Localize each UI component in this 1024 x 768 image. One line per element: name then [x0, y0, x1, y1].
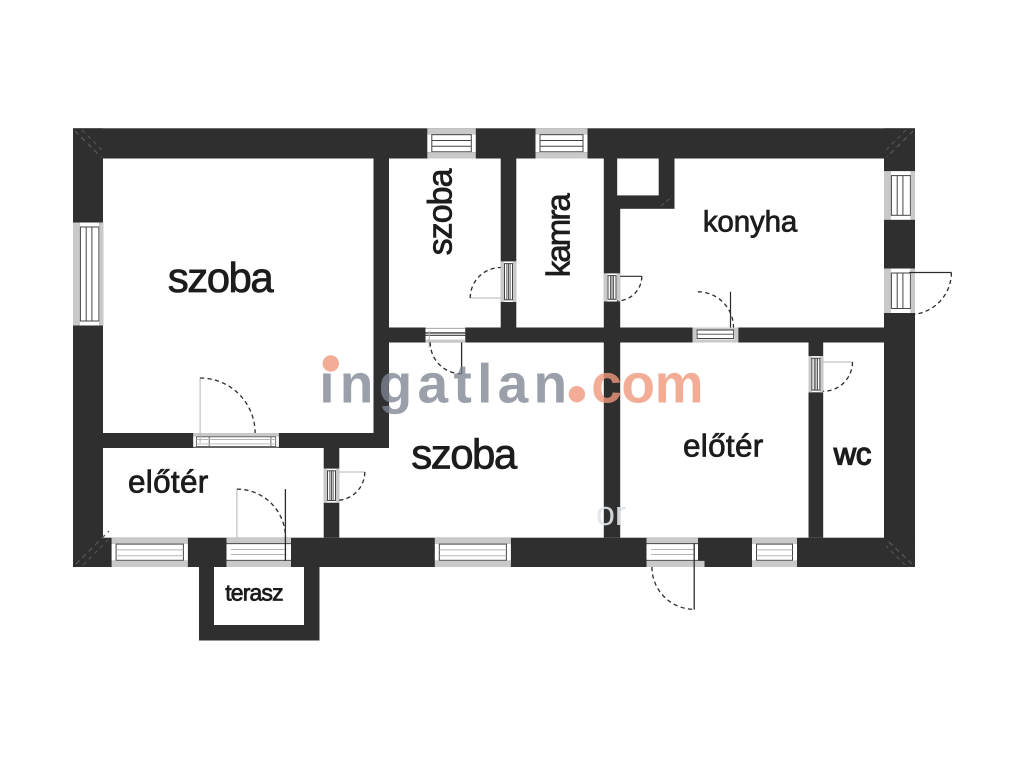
- svg-text:előtér: előtér: [683, 427, 764, 463]
- svg-text:ıngatlan: ıngatlan: [319, 352, 572, 414]
- svg-text:szoba: szoba: [422, 168, 460, 255]
- svg-text:előtér: előtér: [128, 464, 209, 500]
- svg-text:szoba: szoba: [168, 254, 275, 301]
- svg-text:konyha: konyha: [703, 205, 798, 238]
- svg-text:or: or: [596, 495, 626, 533]
- svg-text:wc: wc: [833, 437, 871, 472]
- svg-text:szoba: szoba: [411, 431, 518, 478]
- svg-text:kamra: kamra: [540, 193, 577, 278]
- svg-text:terasz: terasz: [225, 580, 283, 606]
- svg-text:com: com: [591, 352, 703, 414]
